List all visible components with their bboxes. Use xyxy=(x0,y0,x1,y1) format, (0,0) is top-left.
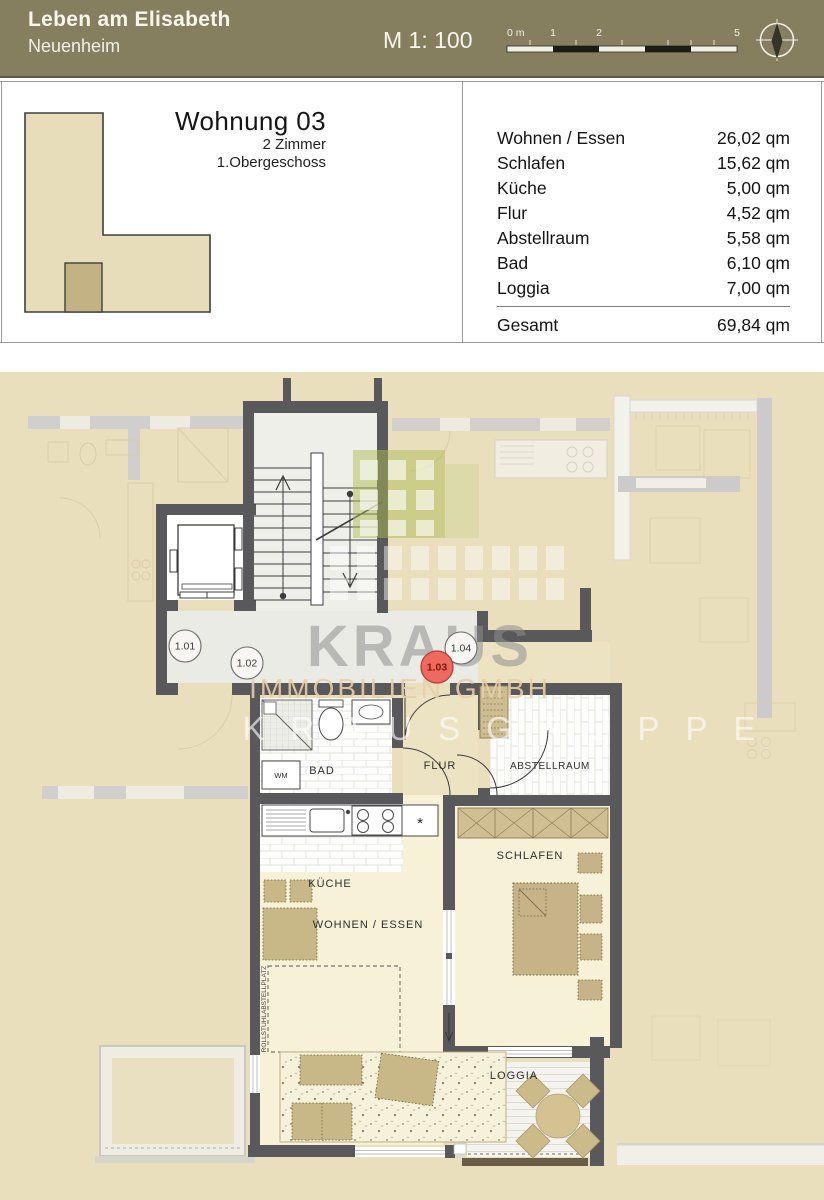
table-row: Loggia7,00 qm xyxy=(497,276,790,301)
total-area: 69,84 qm xyxy=(717,313,790,338)
room-area: 5,58 qm xyxy=(727,226,790,251)
room-label: Schlafen xyxy=(497,151,565,176)
table-row: Schlafen15,62 qm xyxy=(497,151,790,176)
unit-marker-1-02: 1.02 xyxy=(231,647,263,679)
table-row: Bad6,10 qm xyxy=(497,251,790,276)
room-label-abstellraum: ABSTELLRAUM xyxy=(510,761,590,772)
room-area: 7,00 qm xyxy=(727,276,790,301)
room-area: 5,00 qm xyxy=(727,176,790,201)
scalebar-zero-label: 0 m xyxy=(507,27,525,39)
table-row: Abstellraum5,58 qm xyxy=(497,226,790,251)
unit-loggia-shape xyxy=(65,263,102,312)
floorplan-sheet: Leben am Elisabeth Neuenheim M 1: 100 0 … xyxy=(0,0,824,1200)
room-label-loggia: LOGGIA xyxy=(490,1070,538,1082)
washing-machine-label: WM xyxy=(274,771,287,780)
room-label-kueche: KÜCHE xyxy=(308,878,352,890)
room-label-bad: BAD xyxy=(309,765,335,777)
room-area: 6,10 qm xyxy=(727,251,790,276)
scalebar-two-label: 2 xyxy=(596,27,602,39)
room-label: Bad xyxy=(497,251,528,276)
kitchen-fixtures: * xyxy=(262,805,438,836)
area-table: Wohnen / Essen26,02 qm Schlafen15,62 qm … xyxy=(497,126,790,338)
room-area: 26,02 qm xyxy=(717,126,790,151)
info-bottom-rule xyxy=(0,342,824,343)
unit-info-block: Wohnung 03 2 Zimmer 1.Obergeschoss xyxy=(130,106,326,172)
room-label: Abstellraum xyxy=(497,226,589,251)
table-total-row: Gesamt69,84 qm xyxy=(497,306,790,338)
info-divider-rule xyxy=(462,81,463,342)
table-row: Flur4,52 qm xyxy=(497,201,790,226)
room-label: Küche xyxy=(497,176,547,201)
scale-bar: 0 m 1 2 5 xyxy=(507,27,740,52)
info-top-rule xyxy=(0,81,824,82)
unit-title: Wohnung 03 xyxy=(130,106,326,136)
room-area: 4,52 qm xyxy=(727,201,790,226)
watermark-brand-text: KRAUS xyxy=(307,614,533,679)
room-label-schlafen: SCHLAFEN xyxy=(497,850,564,862)
svg-text:1.04: 1.04 xyxy=(451,643,472,655)
header-bar: Leben am Elisabeth Neuenheim M 1: 100 0 … xyxy=(0,0,824,78)
room-label-wohnen-essen: WOHNEN / ESSEN xyxy=(313,919,424,931)
room-area: 15,62 qm xyxy=(717,151,790,176)
room-label: Flur xyxy=(497,201,527,226)
wheelchair-space-label: ROLLSTUHLABSTELLPLATZ xyxy=(261,966,268,1053)
elevator xyxy=(170,525,242,598)
unit-marker-1-01: 1.01 xyxy=(169,630,201,662)
scalebar-five-label: 5 xyxy=(734,27,740,39)
total-label: Gesamt xyxy=(497,313,558,338)
info-right-rule xyxy=(821,81,822,342)
dishwasher-star: * xyxy=(417,815,423,832)
compass-icon xyxy=(756,19,798,61)
svg-text:1.03: 1.03 xyxy=(427,662,448,674)
unit-floor-line: 1.Obergeschoss xyxy=(130,154,326,172)
floorplan-drawing: WM * xyxy=(0,368,824,1200)
svg-text:1.01: 1.01 xyxy=(175,641,196,653)
table-row: Wohnen / Essen26,02 qm xyxy=(497,126,790,151)
room-label-flur: FLUR xyxy=(424,760,457,772)
table-row: Küche5,00 qm xyxy=(497,176,790,201)
scalebar-one-label: 1 xyxy=(550,27,556,39)
watermark-line2-text: IMMOBILIEN GMBH xyxy=(249,673,551,704)
scalebar-and-compass: 0 m 1 2 5 xyxy=(0,0,824,78)
room-label: Wohnen / Essen xyxy=(497,126,625,151)
unit-rooms-line: 2 Zimmer xyxy=(130,136,326,154)
svg-text:1.02: 1.02 xyxy=(237,658,258,670)
unit-marker-1-03-highlighted: 1.03 xyxy=(421,651,453,683)
room-label: Loggia xyxy=(497,276,550,301)
watermark-line3-text: KRAUSGRUPPE xyxy=(242,710,781,747)
